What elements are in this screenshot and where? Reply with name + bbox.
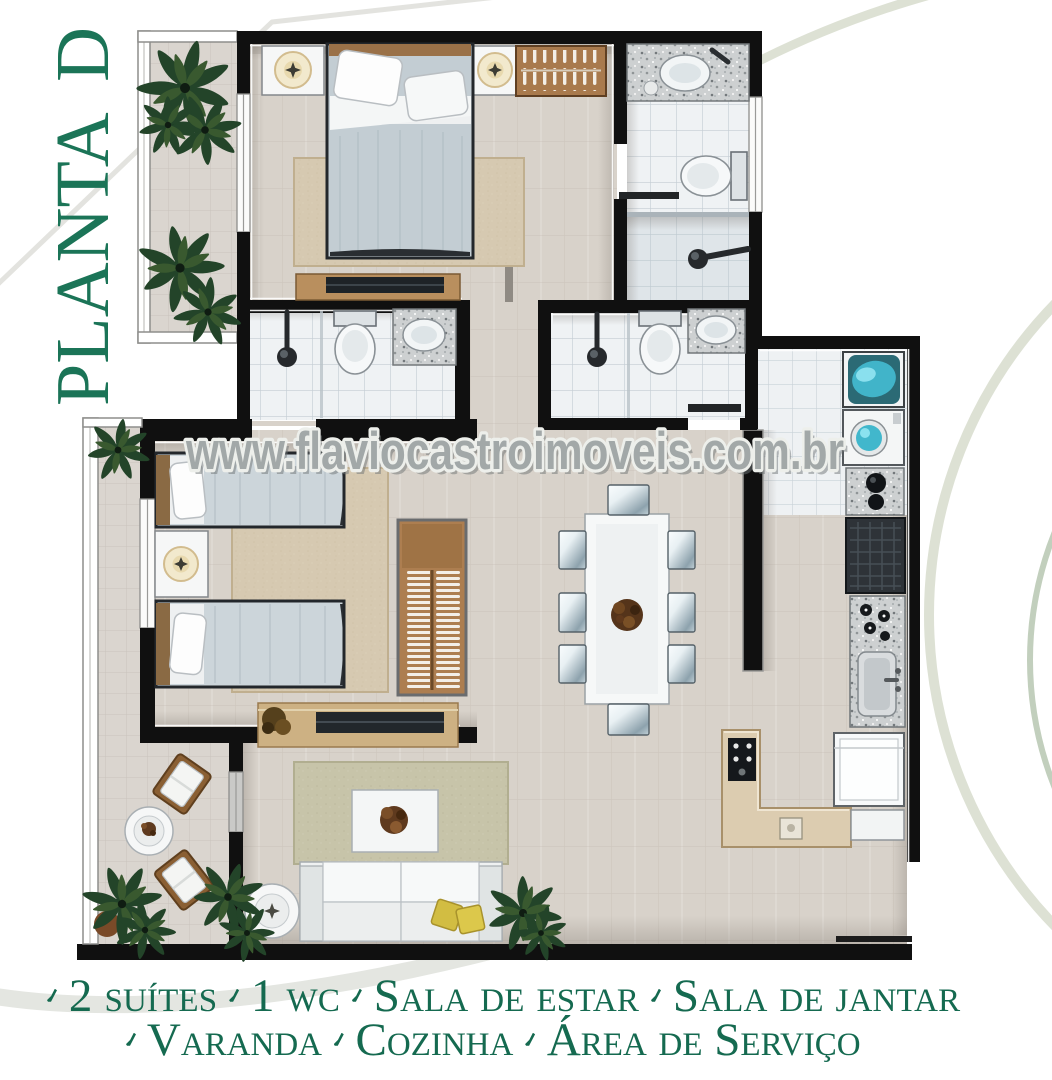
svg-text:www.flaviocastroimoveis.com.br: www.flaviocastroimoveis.com.br xyxy=(185,422,844,481)
